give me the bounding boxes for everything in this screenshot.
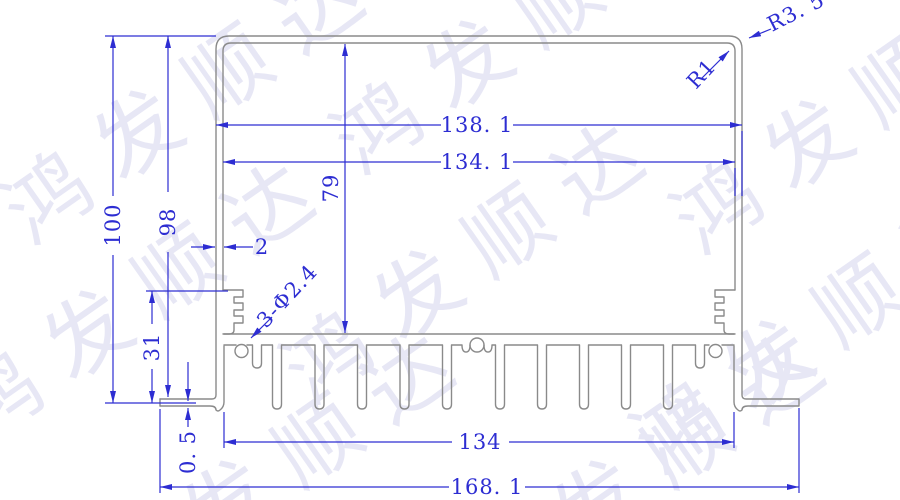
extrusion-profile-drawing: 100 98 31 0. 5 79 138. 1 134. 1 2	[0, 0, 900, 500]
screw-hole-left	[235, 345, 248, 358]
dim-r3-5-label: R3. 5	[763, 0, 828, 36]
screw-hole-center	[470, 338, 484, 352]
profile-left-foot-underside	[160, 346, 224, 411]
dim-168-label: 168. 1	[451, 475, 524, 499]
dim-138-label: 138. 1	[441, 113, 514, 137]
dim-98-label: 98	[156, 208, 180, 237]
base-plate-and-fins	[224, 345, 734, 409]
dim-0-5-label: 0. 5	[176, 430, 200, 474]
dim-2-label: 2	[255, 235, 269, 259]
dim-r1-label: R1	[682, 54, 721, 93]
right-wall-serration	[715, 290, 735, 334]
leader-r3-5	[749, 29, 771, 38]
cad-drawing-page: 鸿发顺达 鸿发顺达 鸿发顺达 鸿发顺达 鸿发顺达 鸿发顺达 鸿发顺达 鸿发顺达	[0, 0, 900, 500]
profile-shell-outline	[160, 36, 799, 411]
dim-holes-label: 3-Φ2.4	[252, 260, 322, 333]
extension-lines	[105, 36, 799, 493]
dimension-annotations: 100 98 31 0. 5 79 138. 1 134. 1 2	[101, 0, 829, 499]
dim-100-label: 100	[101, 203, 125, 246]
screw-hole-right	[709, 345, 722, 358]
dim-31-label: 31	[140, 333, 164, 362]
dim-134-1-label: 134. 1	[441, 150, 514, 174]
left-wall-serration	[223, 290, 243, 334]
dim-79-label: 79	[319, 174, 343, 203]
dim-134-label: 134	[458, 430, 501, 454]
profile-geometry	[160, 36, 799, 411]
